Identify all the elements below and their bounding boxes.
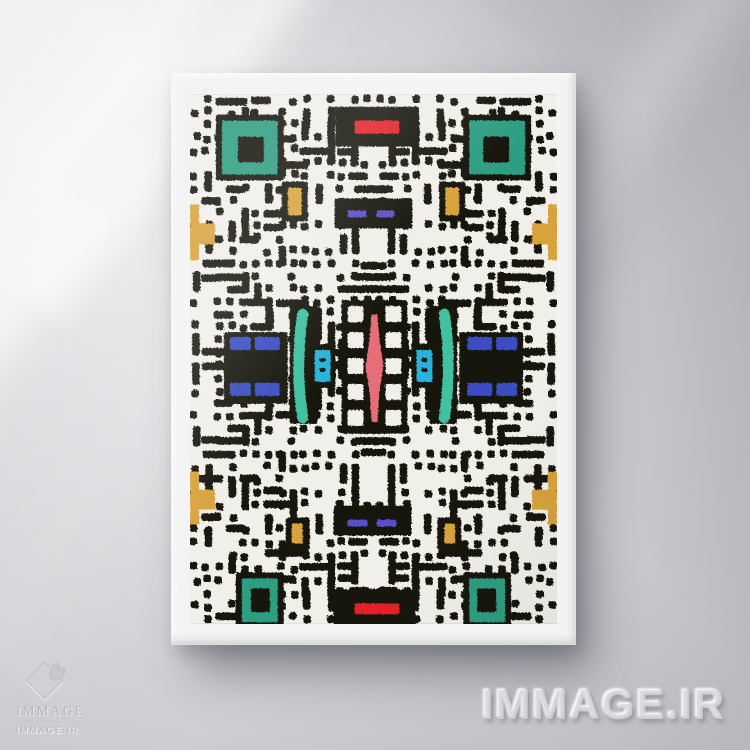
picture-frame — [171, 73, 576, 645]
mockup-scene: IMMAGE.IR IMMAGE IMMAGE.IR — [0, 0, 750, 750]
logo-mark — [16, 660, 126, 700]
brand-logo: IMMAGE IMMAGE.IR — [16, 660, 126, 735]
watermark-text: IMMAGE.IR — [482, 684, 726, 726]
art-print — [190, 94, 557, 624]
logo-title: IMMAGE — [16, 703, 126, 719]
flame-icon — [46, 658, 68, 686]
logo-divider — [17, 721, 85, 722]
artwork-canvas — [190, 94, 557, 624]
logo-site: IMMAGE.IR — [16, 725, 126, 735]
